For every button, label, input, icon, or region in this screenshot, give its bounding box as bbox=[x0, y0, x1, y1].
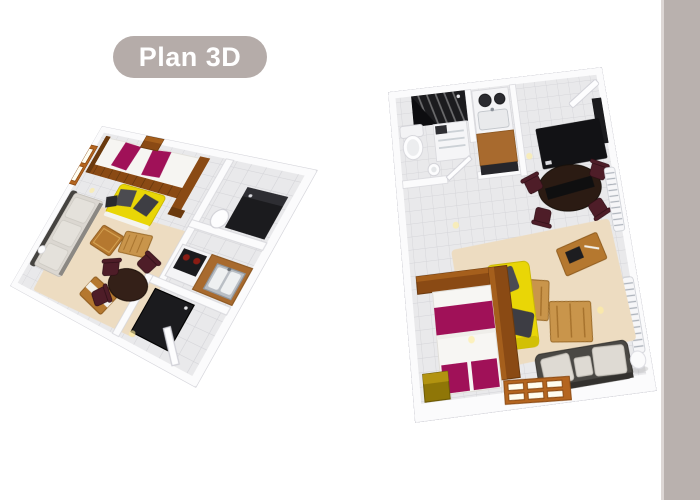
plan-3d-image: Plan 3D bbox=[0, 0, 700, 500]
floorplan-perspective-view bbox=[10, 126, 318, 388]
coffee-table bbox=[549, 301, 593, 342]
floorplan-top-view bbox=[388, 67, 657, 423]
plan-3d-badge-label: Plan 3D bbox=[139, 42, 242, 73]
window bbox=[504, 376, 572, 404]
plan-3d-badge: Plan 3D bbox=[113, 36, 267, 78]
sink bbox=[478, 109, 510, 131]
page-side-strip bbox=[661, 0, 700, 500]
